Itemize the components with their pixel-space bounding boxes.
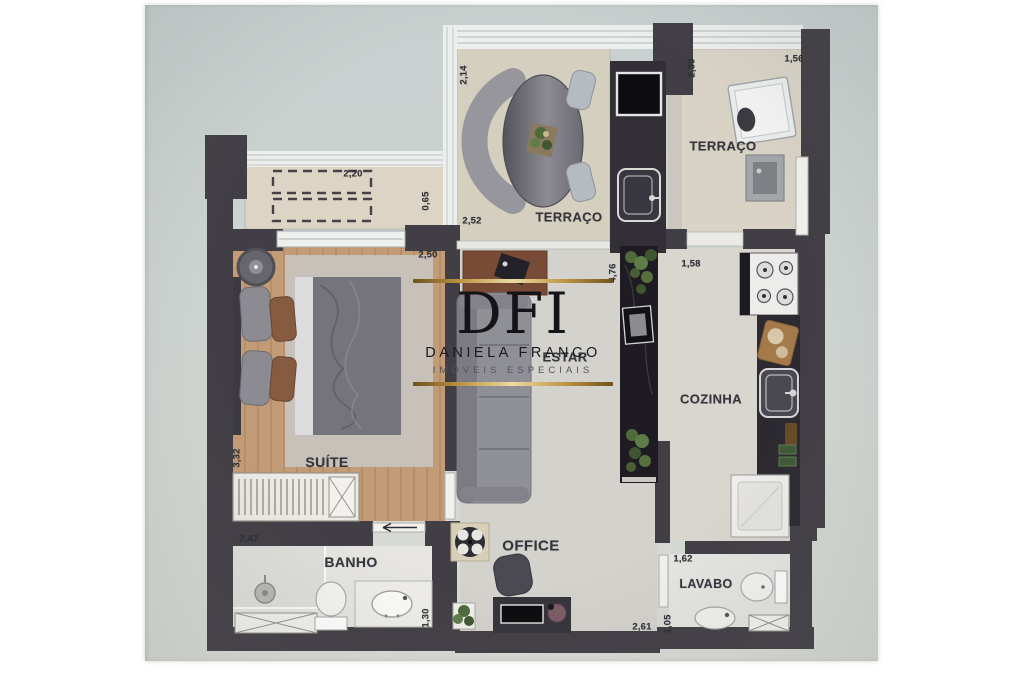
- floor-plan-photo: TERRAÇO TERRAÇO SUÍTE ESTAR COZINHA BANH…: [145, 5, 878, 661]
- grill-counter: [610, 61, 666, 253]
- picture-frame-icon: [622, 306, 653, 344]
- dim-ac-ledge-width: 2,20: [343, 169, 362, 180]
- room-label-terrace-main: TERRAÇO: [535, 210, 602, 225]
- dim-terrace-main-depth: 2,14: [459, 65, 470, 84]
- plant-icon: [453, 603, 475, 629]
- toilet-icon: [315, 582, 347, 630]
- towel-rack-icon: [749, 615, 789, 631]
- desk-chair-icon: [492, 552, 534, 598]
- dim-terrace-main-width: 2,52: [462, 216, 481, 227]
- shower-floor: [233, 546, 325, 608]
- dim-bathroom-depth: 1,30: [421, 608, 432, 627]
- page: TERRAÇO TERRAÇO SUÍTE ESTAR COZINHA BANH…: [0, 0, 1024, 683]
- room-label-lavatory: LAVABO: [679, 577, 732, 591]
- kitchen-terrace-glass-door: [687, 232, 743, 246]
- dim-suite-depth: 3,32: [232, 448, 243, 467]
- towel-rack-icon: [235, 613, 317, 633]
- dim-kitchen-width: 1,58: [681, 259, 700, 270]
- brand-name: DANIELA FRANCO: [413, 345, 613, 361]
- washing-machine-icon: [746, 155, 784, 201]
- brand-tagline: IMÓVEIS ESPECIAIS: [413, 365, 613, 376]
- grill-icon: [617, 73, 661, 115]
- dim-ac-ledge-depth: 0,65: [421, 191, 432, 210]
- dim-lavatory-width: 1,62: [673, 554, 692, 565]
- cooktop-icon: [740, 253, 798, 315]
- kitchen-sink-icon: [760, 369, 798, 417]
- mat-icon: [779, 457, 796, 466]
- desk-icon: [493, 597, 571, 633]
- room-label-bathroom: BANHO: [324, 554, 377, 570]
- lavatory-door: [659, 555, 668, 607]
- lavatory-sink-icon: [695, 607, 735, 629]
- room-label-kitchen: COZINHA: [680, 392, 742, 407]
- laundry-basin-icon: [728, 77, 797, 146]
- dim-lavatory-depth: 1,05: [663, 614, 674, 633]
- entry-door: [796, 157, 808, 235]
- dim-terrace-service-depth: 2,39: [687, 58, 698, 77]
- toilet-icon: [741, 571, 787, 603]
- dim-bathroom-width: 2,47: [239, 534, 258, 545]
- mat-icon: [779, 445, 796, 454]
- brand-monogram: DFI: [413, 287, 613, 343]
- living-terrace-glass-door: [457, 241, 610, 249]
- dim-suite-width: 2,50: [418, 250, 437, 261]
- brand-watermark: DFI DANIELA FRANCO IMÓVEIS ESPECIAIS: [413, 279, 613, 386]
- washer-icon: [731, 475, 789, 537]
- dim-terrace-service-width: 1,56: [784, 54, 803, 65]
- counter-edge-strip: [668, 95, 681, 235]
- room-label-terrace-service: TERRAÇO: [689, 139, 756, 154]
- wardrobe-icon: [233, 473, 359, 521]
- dim-office-width: 2,61: [632, 622, 651, 633]
- gold-rule-bottom: [413, 382, 613, 386]
- room-label-suite: SUÍTE: [305, 454, 348, 470]
- terrace-sink-icon: [618, 169, 660, 221]
- round-table-icon: [451, 523, 489, 561]
- tv-garden-panel: [620, 246, 658, 483]
- suite-door: [445, 473, 455, 519]
- bottle-icon: [785, 423, 797, 445]
- room-label-office: OFFICE: [502, 538, 559, 555]
